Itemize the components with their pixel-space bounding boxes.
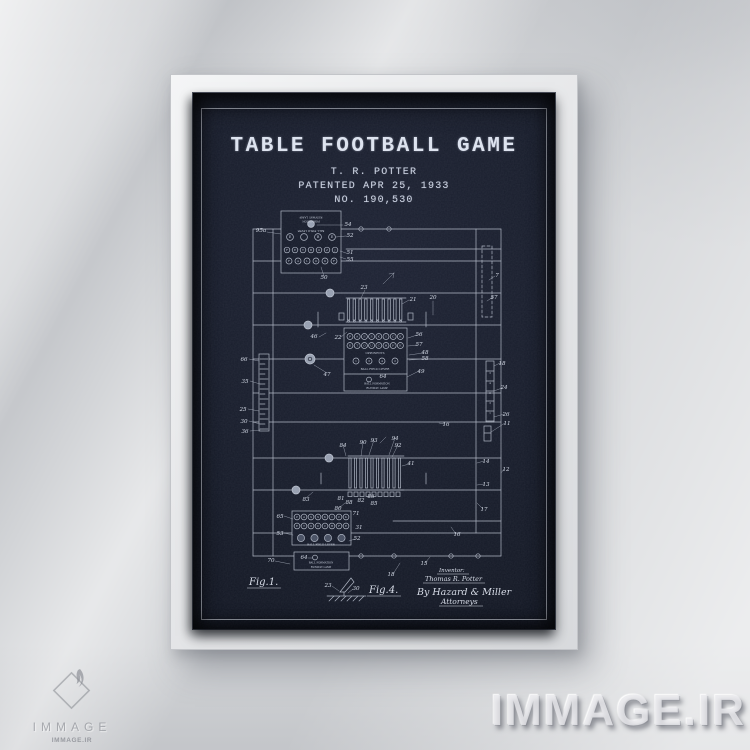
- paper-grain: [193, 93, 555, 629]
- brand-logo-sub: IMMAGE.IR: [16, 737, 128, 744]
- picture-frame: TABLE FOOTBALL GAME T. R. POTTER PATENTE…: [170, 74, 578, 650]
- watermark-text: IMMAGE.IR: [491, 686, 746, 736]
- brand-logo-name: IMMAGE: [16, 720, 128, 734]
- scene-wall: { "poster": { "title": "TABLE FOOTBALL G…: [0, 0, 750, 750]
- brand-logo-mark: [45, 668, 99, 714]
- patent-poster: TABLE FOOTBALL GAME T. R. POTTER PATENTE…: [193, 93, 555, 629]
- brand-logo: IMMAGE IMMAGE.IR: [16, 668, 128, 744]
- patent-figure: EBE FETBOZJ FALODF PASSKICK ETOUCHFE 134…: [193, 93, 555, 629]
